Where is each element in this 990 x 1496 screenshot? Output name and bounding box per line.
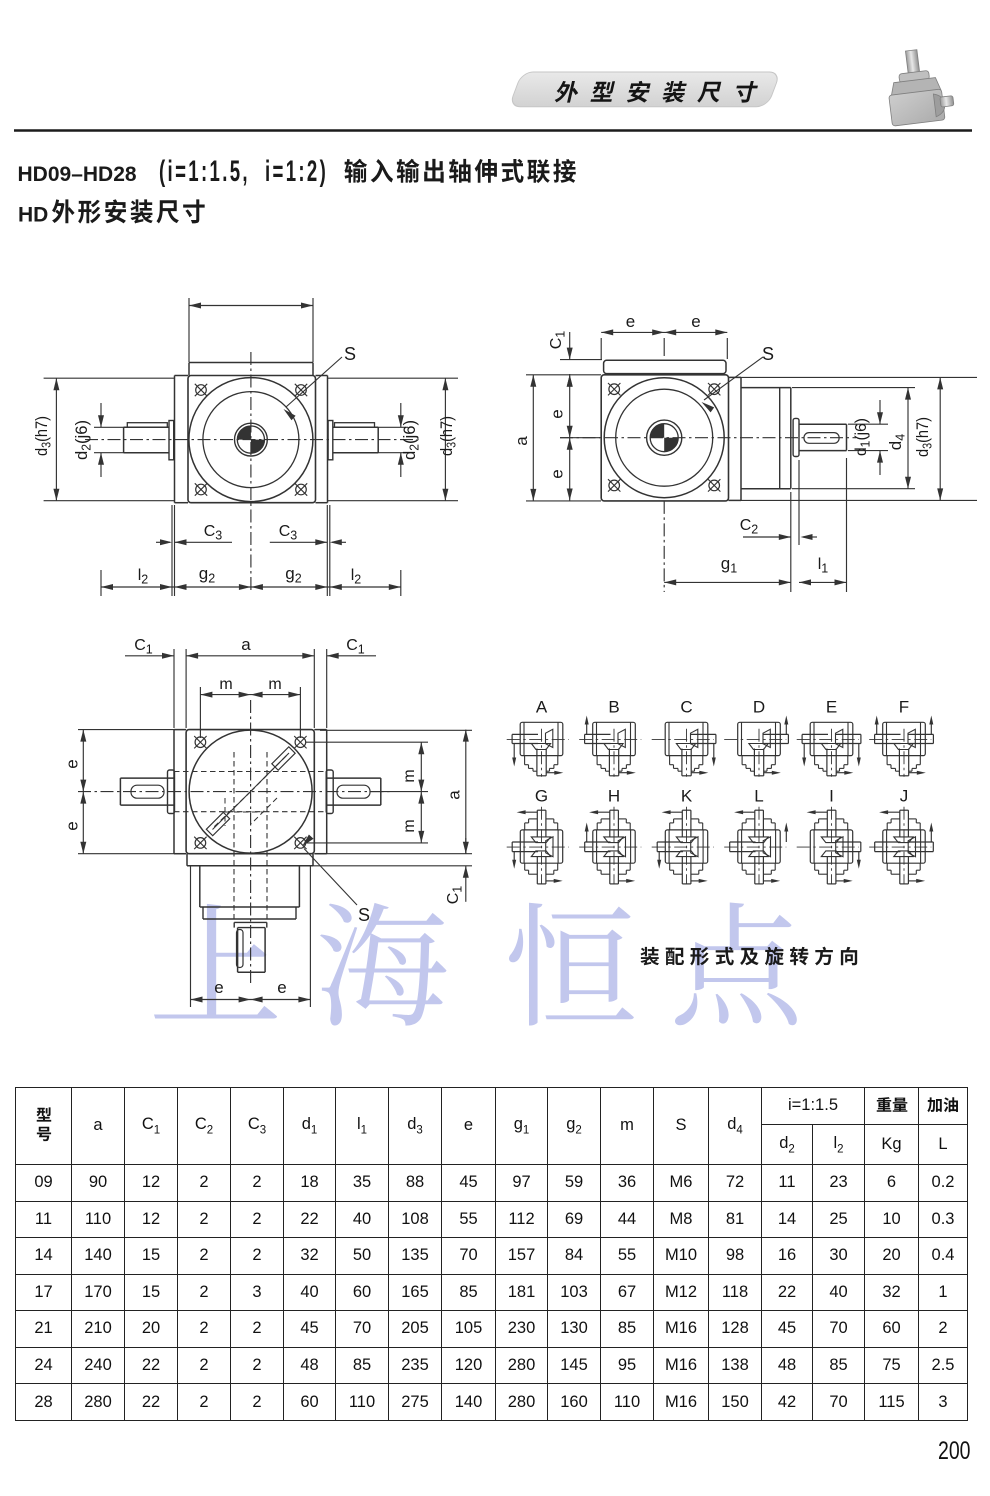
svg-text:A: A	[536, 698, 548, 717]
svg-text:C2: C2	[740, 517, 759, 537]
svg-text:S: S	[344, 344, 356, 364]
svg-text:H: H	[608, 787, 620, 806]
svg-text:g2: g2	[285, 564, 301, 586]
svg-text:a: a	[445, 790, 464, 800]
svg-text:HD: HD	[18, 204, 48, 227]
svg-text:(i=1:1.5, i=1:2): (i=1:1.5, i=1:2)	[159, 155, 328, 189]
svg-text:D: D	[753, 698, 765, 717]
svg-text:200: 200	[938, 1437, 971, 1465]
svg-text:d4: d4	[886, 434, 908, 450]
svg-text:L: L	[754, 787, 763, 806]
svg-text:m: m	[401, 819, 418, 832]
svg-text:d2(j6): d2(j6)	[72, 420, 94, 460]
svg-text:C: C	[680, 698, 692, 717]
svg-text:e: e	[548, 469, 567, 478]
svg-text:l2: l2	[138, 567, 149, 587]
svg-text:I: I	[829, 787, 834, 806]
svg-text:d3(h7): d3(h7)	[437, 416, 459, 456]
svg-text:e: e	[626, 312, 635, 331]
svg-text:a: a	[241, 635, 251, 654]
svg-text:e: e	[63, 759, 82, 768]
svg-text:E: E	[826, 698, 837, 717]
svg-text:C3: C3	[279, 523, 298, 543]
svg-text:G: G	[535, 787, 548, 806]
svg-text:d3(h7): d3(h7)	[32, 416, 54, 456]
svg-text:e: e	[548, 409, 567, 418]
svg-text:S: S	[358, 905, 370, 925]
svg-text:a: a	[512, 436, 531, 446]
svg-text:F: F	[899, 698, 909, 717]
svg-text:C1: C1	[346, 637, 365, 657]
svg-text:J: J	[900, 787, 909, 806]
svg-text:d1(j6): d1(j6)	[853, 418, 873, 456]
svg-text:C1: C1	[134, 637, 153, 657]
svg-text:e: e	[214, 978, 223, 997]
svg-text:S: S	[762, 344, 774, 364]
svg-text:m: m	[219, 676, 232, 693]
svg-text:e: e	[691, 312, 700, 331]
svg-text:d3(h7): d3(h7)	[913, 417, 935, 457]
svg-text:C3: C3	[204, 523, 223, 543]
svg-text:e: e	[277, 978, 286, 997]
svg-text:e: e	[63, 821, 82, 830]
svg-text:m: m	[401, 769, 418, 782]
svg-text:l2: l2	[351, 567, 362, 587]
svg-text:K: K	[681, 787, 693, 806]
svg-text:m: m	[268, 676, 281, 693]
svg-text:l1: l1	[818, 556, 829, 576]
svg-text:HD09–HD28: HD09–HD28	[18, 163, 137, 186]
svg-text:C1: C1	[445, 886, 465, 905]
svg-text:g1: g1	[721, 554, 737, 576]
svg-text:d2(j6): d2(j6)	[400, 420, 422, 460]
svg-text:g2: g2	[199, 564, 215, 586]
svg-text:C1: C1	[548, 331, 568, 350]
svg-text:B: B	[608, 698, 619, 717]
